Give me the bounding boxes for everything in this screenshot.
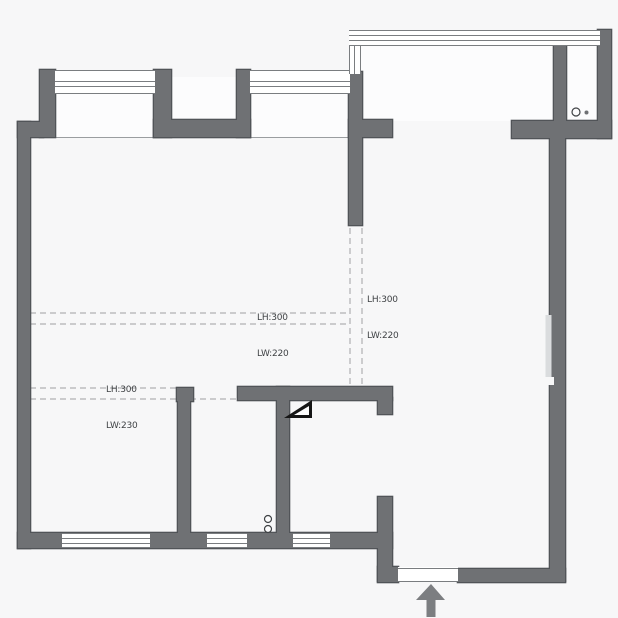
top-middle-wall-stub — [349, 120, 392, 137]
top-left-wall-step — [18, 122, 43, 137]
upper-right-wall — [512, 121, 611, 138]
fixture-circle-icon — [265, 516, 272, 523]
left-exterior-wall — [18, 122, 30, 548]
door-hinge-notch — [545, 377, 554, 385]
bay-pillar-1 — [40, 70, 55, 137]
bay-window-left — [55, 70, 155, 94]
door-leaf-icon — [546, 315, 552, 379]
niche-recess — [171, 77, 237, 121]
bedroom-window — [62, 533, 150, 548]
fixture-circle-icon — [572, 108, 580, 116]
beam-label-left: LH:300 LW:220 — [257, 288, 289, 384]
kitchen-top-wall-end — [378, 398, 392, 414]
ceiling-height-label — [452, 350, 463, 398]
bathroom-window — [207, 533, 247, 548]
floor-plan: LH:300 LW:220 LH:300 LW:220 LH:300 LW:23… — [0, 0, 618, 618]
right-exterior-wall — [550, 138, 565, 581]
bay-recess-right — [250, 94, 349, 138]
beam-label-bottom: LH:300 LW:230 — [106, 360, 138, 456]
kitchen-top-wall — [238, 387, 392, 400]
fixture-circle-icon — [265, 526, 272, 533]
entry-door-opening — [398, 567, 458, 582]
balcony-side-window — [349, 46, 361, 74]
bay-recess-left — [56, 94, 154, 138]
top-middle-wall — [349, 72, 362, 225]
floor-plan-canvas — [0, 0, 618, 618]
bay-pillar-3 — [237, 70, 250, 137]
beam-label-right: LH:300 LW:220 — [367, 270, 399, 366]
bedroom-divider-wall — [178, 399, 190, 535]
bay-window-right — [250, 70, 350, 94]
closet-partition-wall — [554, 45, 566, 123]
fixture-dot-icon — [585, 111, 589, 115]
entry-bottom-wall-right — [458, 569, 565, 582]
bathroom-divider-wall — [277, 387, 289, 535]
niche-bottom-wall — [154, 120, 250, 137]
balcony-window-band — [349, 30, 600, 46]
kitchen-window — [293, 533, 330, 548]
